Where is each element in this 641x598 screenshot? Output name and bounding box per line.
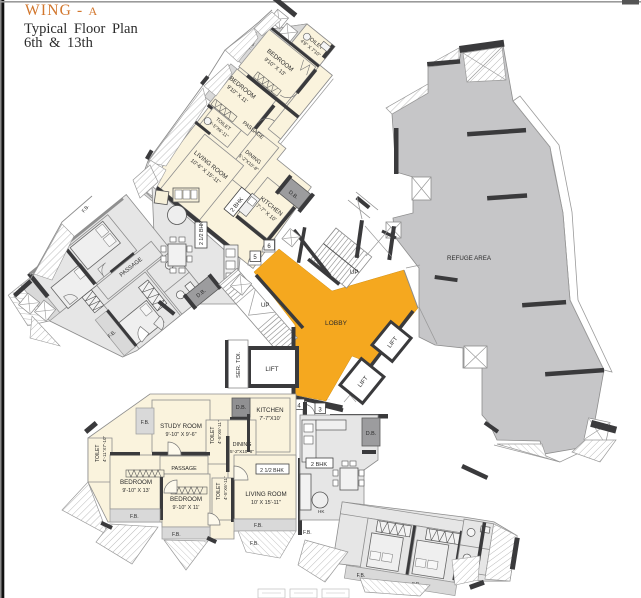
svg-text:9'-10" X 9'-6": 9'-10" X 9'-6": [165, 432, 196, 438]
svg-text:2 1/2 BHK: 2 1/2 BHK: [199, 221, 205, 245]
svg-text:7'-7"X10': 7'-7"X10': [259, 416, 280, 422]
svg-text:4'-5"X6'-11": 4'-5"X6'-11": [217, 420, 222, 444]
svg-text:LOBBY: LOBBY: [325, 320, 348, 327]
svg-text:6th & 13th: 6th & 13th: [24, 35, 94, 51]
svg-text:LIVING ROOM: LIVING ROOM: [245, 491, 286, 498]
svg-text:5'-2"X10'-8": 5'-2"X10'-8": [230, 449, 254, 454]
svg-text:HK: HK: [318, 509, 325, 514]
svg-text:2 1/2 BHK: 2 1/2 BHK: [260, 468, 284, 474]
svg-text:PASSAGE: PASSAGE: [171, 466, 197, 472]
svg-text:TOILET: TOILET: [210, 427, 216, 444]
svg-text:F.B.: F.B.: [254, 523, 263, 529]
svg-text:WING - A: WING - A: [25, 2, 98, 19]
svg-text:4'-11"X7'-10": 4'-11"X7'-10": [102, 436, 107, 462]
svg-text:F.B.: F.B.: [172, 532, 181, 538]
svg-text:D.B.: D.B.: [236, 405, 246, 411]
svg-text:KITCHEN: KITCHEN: [256, 407, 283, 414]
svg-text:F.B.: F.B.: [303, 530, 312, 536]
svg-text:4'-5"X6'-11": 4'-5"X6'-11": [223, 476, 228, 500]
svg-text:D.B.: D.B.: [366, 431, 376, 437]
svg-text:F.B.: F.B.: [130, 514, 139, 520]
svg-text:TOILET: TOILET: [216, 483, 222, 500]
svg-text:9'-10" X 13': 9'-10" X 13': [122, 488, 149, 494]
svg-text:BEDROOM: BEDROOM: [120, 479, 152, 486]
svg-text:10' X 15'-11": 10' X 15'-11": [251, 500, 281, 506]
svg-text:STUDY ROOM: STUDY ROOM: [160, 423, 202, 430]
svg-text:F.B.: F.B.: [141, 420, 150, 426]
svg-text:SER. TOI.: SER. TOI.: [236, 351, 242, 378]
svg-text:TOILET: TOILET: [95, 445, 101, 462]
svg-text:9'-10" X 11': 9'-10" X 11': [173, 505, 200, 511]
svg-text:2 BHK: 2 BHK: [311, 462, 327, 468]
svg-text:BEDROOM: BEDROOM: [170, 496, 202, 503]
svg-text:REFUGE AREA: REFUGE AREA: [447, 255, 492, 262]
svg-text:LIFT: LIFT: [265, 366, 278, 373]
svg-text:UP: UP: [261, 303, 269, 309]
svg-text:UP: UP: [350, 270, 358, 276]
svg-text:F.B.: F.B.: [250, 541, 259, 547]
